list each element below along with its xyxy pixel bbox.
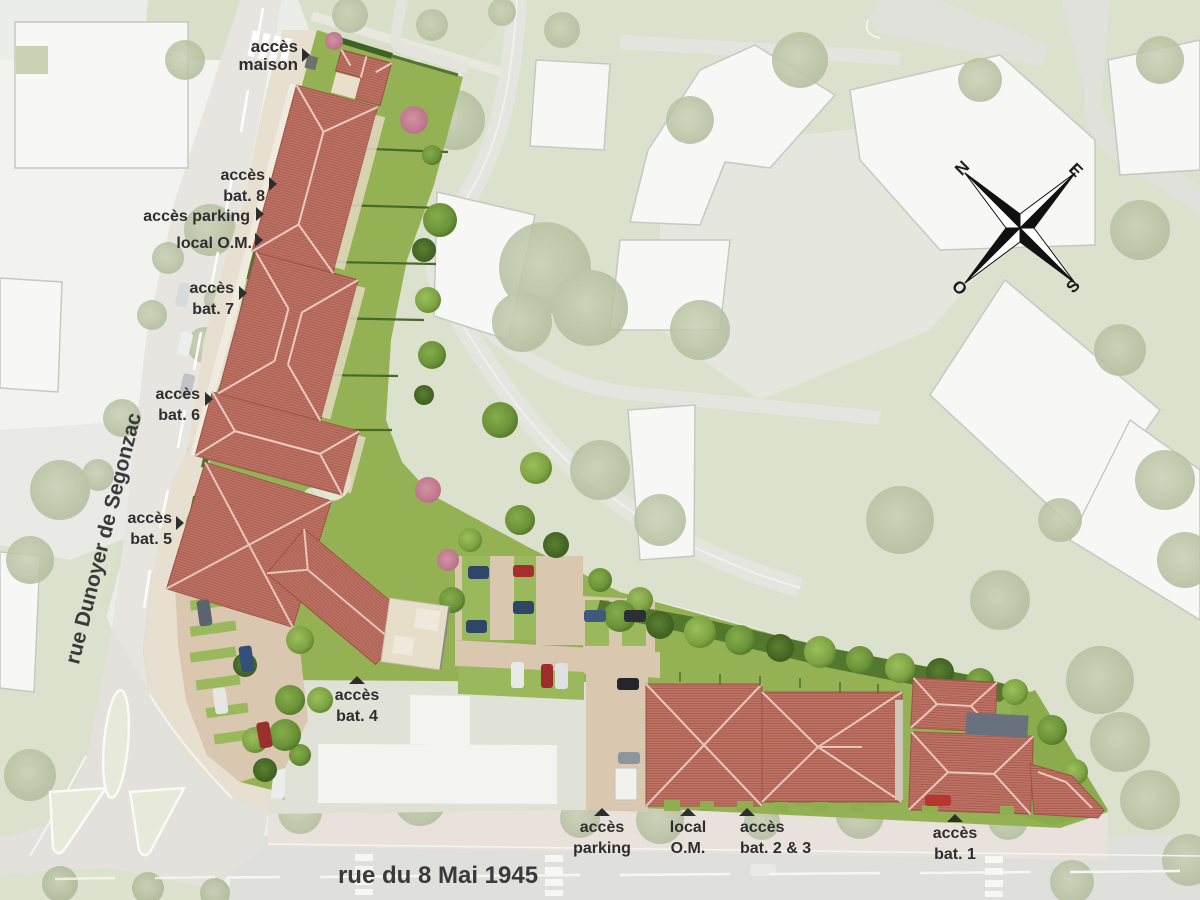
svg-text:O.M.: O.M.	[671, 840, 706, 857]
svg-text:maison: maison	[238, 55, 298, 74]
svg-text:accès: accès	[335, 687, 380, 704]
svg-text:accès: accès	[190, 280, 235, 297]
svg-text:rue du 8 Mai 1945: rue du 8 Mai 1945	[338, 862, 538, 889]
svg-text:bat. 8: bat. 8	[223, 188, 265, 205]
svg-text:accès parking: accès parking	[143, 208, 250, 225]
svg-text:accès: accès	[580, 819, 625, 836]
svg-text:local O.M.: local O.M.	[176, 235, 252, 252]
svg-text:bat. 7: bat. 7	[192, 301, 234, 318]
svg-text:local: local	[670, 819, 706, 836]
svg-text:bat. 2 & 3: bat. 2 & 3	[740, 840, 811, 857]
svg-text:bat. 4: bat. 4	[336, 708, 378, 725]
svg-text:bat. 1: bat. 1	[934, 846, 976, 863]
svg-text:accès: accès	[740, 819, 785, 836]
svg-text:bat. 6: bat. 6	[158, 407, 200, 424]
svg-text:accès: accès	[128, 510, 173, 527]
svg-text:bat. 5: bat. 5	[130, 531, 172, 548]
svg-text:accès: accès	[251, 37, 298, 56]
svg-text:parking: parking	[573, 840, 631, 857]
svg-text:accès: accès	[156, 386, 201, 403]
svg-text:accès: accès	[933, 825, 978, 842]
svg-text:accès: accès	[221, 167, 266, 184]
